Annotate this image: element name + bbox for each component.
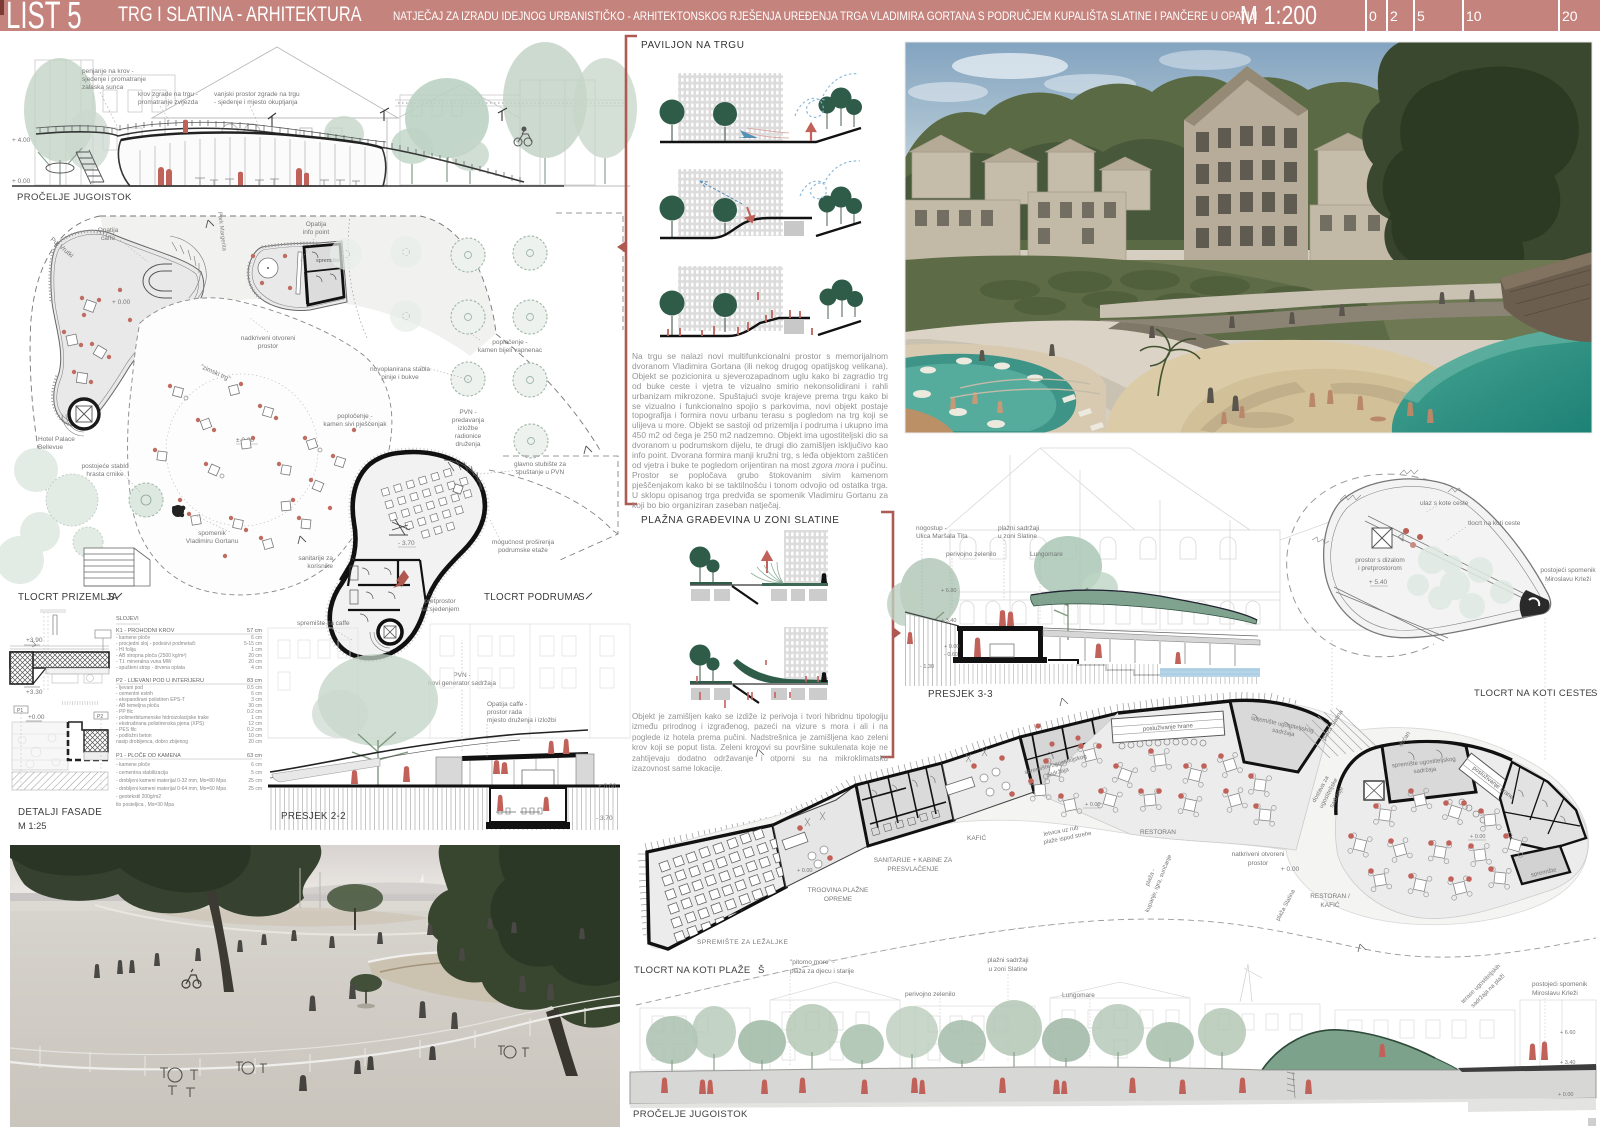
svg-text:6 cm: 6 cm: [251, 762, 262, 768]
svg-text:+0.00: +0.00: [28, 714, 45, 721]
svg-text:20 cm: 20 cm: [248, 739, 262, 745]
svg-text:perivojno zelenilo: perivojno zelenilo: [946, 551, 997, 558]
svg-text:P1: P1: [17, 708, 23, 714]
svg-text:PRESJEK 3-3: PRESJEK 3-3: [928, 689, 993, 700]
svg-text:Bellevue: Bellevue: [38, 444, 63, 451]
svg-text:popločenje -: popločenje -: [492, 339, 527, 346]
svg-text:prostor: prostor: [1248, 860, 1269, 867]
svg-text:druženja: druženja: [456, 441, 481, 448]
svg-text:KAFIĆ: KAFIĆ: [1320, 900, 1339, 909]
svg-text:plažni sadržaji: plažni sadržaji: [987, 957, 1028, 964]
svg-text:mjesto druženja i izložbi: mjesto druženja i izložbi: [487, 717, 556, 724]
svg-text:PRESVLAČENJE: PRESVLAČENJE: [887, 864, 939, 873]
svg-text:izložbe: izložbe: [458, 425, 479, 432]
svg-text:OPREME: OPREME: [824, 896, 853, 903]
svg-text:TLOCRT NA KOTI PLAŽE: TLOCRT NA KOTI PLAŽE: [634, 965, 751, 976]
svg-text:+ 0.00: + 0.00: [1281, 866, 1300, 873]
svg-text:plažni sadržaji: plažni sadržaji: [998, 525, 1039, 532]
svg-text:- geotekstil 200g/m2: - geotekstil 200g/m2: [116, 794, 161, 800]
svg-text:+ 0.00: + 0.00: [112, 299, 131, 306]
svg-text:prostor: prostor: [258, 343, 279, 350]
svg-text:nogostup -: nogostup -: [916, 525, 947, 532]
svg-text:Vladimiru Gortanu: Vladimiru Gortanu: [186, 538, 239, 545]
svg-text:+ 0.00: + 0.00: [598, 783, 617, 790]
svg-text:plaža Slatina: plaža Slatina: [1275, 888, 1297, 922]
svg-text:Opatija: Opatija: [98, 227, 119, 234]
svg-text:info point: info point: [303, 229, 330, 236]
svg-text:57 cm: 57 cm: [247, 628, 262, 634]
svg-text:Opatija caffe -: Opatija caffe -: [487, 701, 527, 708]
svg-text:+ 5.40: + 5.40: [1369, 579, 1388, 586]
svg-text:K1 - PROHODNI KROV: K1 - PROHODNI KROV: [116, 628, 175, 634]
svg-text:+ 0.00: + 0.00: [1085, 802, 1100, 808]
svg-text:postojeći spomenik: postojeći spomenik: [1540, 567, 1596, 574]
svg-text:radionice: radionice: [455, 433, 482, 440]
svg-text:TLOCRT PRIZEMLJA: TLOCRT PRIZEMLJA: [18, 592, 118, 603]
svg-text:natkriveni otvoreni: natkriveni otvoreni: [1232, 851, 1285, 858]
svg-text:glavno stubište za: glavno stubište za: [514, 461, 566, 468]
svg-text:TRGOVINA PLAŽNE: TRGOVINA PLAŽNE: [808, 885, 869, 894]
svg-text:+3.90: +3.90: [26, 637, 43, 644]
svg-text:prostor rada: prostor rada: [487, 709, 522, 716]
svg-text:5 cm: 5 cm: [251, 770, 262, 776]
svg-text:PROČELJE JUGOISTOK: PROČELJE JUGOISTOK: [17, 192, 132, 203]
svg-text:mogućnost proširenja: mogućnost proširenja: [492, 539, 555, 546]
svg-text:P1 - PLOČE OD KAMENA: P1 - PLOČE OD KAMENA: [116, 752, 181, 759]
svg-text:25 cm: 25 cm: [248, 778, 262, 784]
svg-text:+ 0.00: + 0.00: [944, 644, 959, 650]
svg-text:+ 0.00: + 0.00: [12, 178, 31, 185]
svg-text:+ 0.00: + 0.00: [1558, 1092, 1573, 1098]
svg-text:P2: P2: [97, 714, 103, 720]
svg-text:u zoni Slatine: u zoni Slatine: [998, 533, 1037, 540]
svg-text:podrumske etaže: podrumske etaže: [498, 547, 548, 554]
svg-text:promatranje zvijezda: promatranje zvijezda: [138, 99, 198, 106]
svg-text:pretprostor: pretprostor: [424, 598, 456, 605]
svg-text:Hotel Palace: Hotel Palace: [38, 436, 75, 443]
svg-text:+ 3.40: + 3.40: [941, 618, 956, 624]
svg-text:u zoni Slatine: u zoni Slatine: [988, 966, 1027, 973]
svg-text:S: S: [1591, 688, 1597, 699]
svg-text:- drobljeni kameni materijal 0: - drobljeni kameni materijal 0-32 mm, Ms…: [116, 778, 226, 784]
svg-text:Š: Š: [758, 965, 764, 976]
svg-text:plaža za djecu i starije: plaža za djecu i starije: [790, 968, 854, 975]
svg-text:+ 6.60: + 6.60: [1560, 1030, 1575, 1036]
svg-text:TLOCRT PODRUMA: TLOCRT PODRUMA: [484, 592, 580, 603]
svg-text:- 3.70: - 3.70: [596, 815, 613, 822]
svg-text:SPREMIŠTE ZA LEŽALJKE: SPREMIŠTE ZA LEŽALJKE: [697, 937, 789, 946]
svg-text:- spušteni strop - drvena opla: - spušteni strop - drvena oplata: [116, 665, 185, 671]
svg-text:+ 6.80: + 6.80: [941, 588, 956, 594]
svg-text:M 1:25: M 1:25: [18, 821, 46, 831]
svg-text:PVN -: PVN -: [453, 672, 470, 679]
svg-text:sjedenje i promatranje: sjedenje i promatranje: [82, 76, 146, 83]
svg-text:i pretprostorom: i pretprostorom: [1358, 565, 1402, 572]
svg-text:nasip drobljenca, dobro zbijen: nasip drobljenca, dobro zbijenog: [116, 739, 188, 745]
svg-text:hrasta crnike: hrasta crnike: [86, 471, 124, 478]
svg-text:tlo posteljica , Ms=30 Mpa: tlo posteljica , Ms=30 Mpa: [116, 802, 174, 808]
svg-text:predavanja: predavanja: [452, 417, 485, 424]
svg-text:spomenik: spomenik: [198, 530, 227, 537]
svg-text:- drobljeni kameni materijal 0: - drobljeni kameni materijal 0-64 mm, Ms…: [116, 786, 226, 792]
svg-text:+ 4.00: + 4.00: [12, 137, 31, 144]
svg-text:postojeće stablo: postojeće stablo: [82, 463, 129, 470]
svg-text:Opatija: Opatija: [306, 221, 327, 228]
svg-text:PRESJEK 2-2: PRESJEK 2-2: [281, 811, 346, 822]
svg-text:"pitomo more" -: "pitomo more" -: [790, 959, 835, 966]
svg-text:63 cm: 63 cm: [247, 753, 262, 759]
svg-text:korisnike: korisnike: [307, 563, 333, 570]
svg-text:zalaska sunca: zalaska sunca: [82, 84, 124, 91]
svg-text:tlocrt na koti ceste: tlocrt na koti ceste: [1468, 520, 1521, 527]
svg-text:PROČELJE JUGOISTOK: PROČELJE JUGOISTOK: [633, 1109, 748, 1120]
svg-text:nadkriveni otvoreni: nadkriveni otvoreni: [241, 335, 296, 342]
svg-text:- 0.60: - 0.60: [944, 652, 958, 658]
svg-text:- cementna stabilizacija: - cementna stabilizacija: [116, 770, 168, 776]
svg-text:popločenje -: popločenje -: [337, 413, 372, 420]
svg-text:PLAŽNA GRAĐEVINA U ZONI SLATIN: PLAŽNA GRAĐEVINA U ZONI SLATINE: [641, 513, 839, 526]
svg-text:ulaz s kote ceste: ulaz s kote ceste: [1420, 500, 1469, 507]
svg-text:- kamene ploče: - kamene ploče: [116, 762, 150, 768]
svg-text:RESTORAN /: RESTORAN /: [1310, 893, 1350, 900]
svg-text:prostor s dizalom: prostor s dizalom: [1355, 557, 1405, 564]
svg-text:DETALJI FASADE: DETALJI FASADE: [18, 807, 102, 818]
svg-text:PAVILJON NA TRGU: PAVILJON NA TRGU: [641, 40, 745, 51]
svg-text:S: S: [578, 592, 585, 603]
svg-text:RESTORAN: RESTORAN: [1140, 829, 1176, 836]
svg-text:25 cm: 25 cm: [248, 786, 262, 792]
svg-text:+ 0.00: + 0.00: [1470, 834, 1485, 840]
svg-text:- sjedenje i mjesto okupljanja: - sjedenje i mjesto okupljanja: [214, 99, 298, 106]
svg-text:spuštanje u PVN: spuštanje u PVN: [516, 469, 565, 476]
svg-text:novoplanirana stabla: novoplanirana stabla: [370, 366, 430, 373]
svg-text:Ulica Maršala Tita: Ulica Maršala Tita: [916, 533, 968, 540]
svg-text:spremište za caffe: spremište za caffe: [297, 620, 350, 627]
svg-text:kamen sivi pješčenjak: kamen sivi pješčenjak: [323, 421, 387, 428]
svg-text:perivojno zelenilo: perivojno zelenilo: [905, 991, 956, 998]
svg-text:vanjski prostor zgrade na trgu: vanjski prostor zgrade na trgu: [214, 91, 300, 98]
svg-text:penjanje na krov -: penjanje na krov -: [82, 68, 134, 75]
svg-text:Lungomare: Lungomare: [1030, 551, 1063, 558]
svg-text:KAFIĆ: KAFIĆ: [967, 833, 986, 842]
svg-text:PVN -: PVN -: [459, 409, 476, 416]
svg-text:P2 - LIJEVANI POD U INTERIJERU: P2 - LIJEVANI POD U INTERIJERU: [116, 678, 204, 684]
svg-text:novi generator sadržaja: novi generator sadržaja: [428, 680, 496, 687]
svg-text:krov zgrade na trgu -: krov zgrade na trgu -: [138, 91, 198, 98]
svg-text:- 1.30: - 1.30: [920, 664, 934, 670]
svg-text:SANITARIJE + KABINE ZA: SANITARIJE + KABINE ZA: [874, 857, 953, 864]
svg-text:caffe: caffe: [101, 235, 115, 242]
svg-text:S: S: [108, 592, 115, 603]
svg-text:+3.30: +3.30: [26, 689, 43, 696]
svg-text:kamen bijeli vapnenac: kamen bijeli vapnenac: [478, 347, 543, 354]
svg-text:Lungomare: Lungomare: [1062, 992, 1095, 999]
svg-text:Miroslavu Krleži: Miroslavu Krleži: [1545, 576, 1591, 583]
svg-text:+ 0.00: + 0.00: [797, 868, 812, 874]
svg-text:Miroslavu Krleži: Miroslavu Krleži: [1532, 990, 1578, 997]
svg-text:sa sjedenjem: sa sjedenjem: [421, 606, 459, 613]
svg-text:sanitarije za: sanitarije za: [298, 555, 333, 562]
svg-text:+ 3.40: + 3.40: [1560, 1060, 1575, 1066]
svg-text:TLOCRT NA KOTI CESTE: TLOCRT NA KOTI CESTE: [1474, 688, 1592, 699]
svg-text:postojeći spomenik: postojeći spomenik: [1532, 981, 1588, 988]
svg-text:pinije i bukve: pinije i bukve: [381, 374, 419, 381]
svg-text:- 3.70: - 3.70: [398, 540, 415, 547]
svg-text:SLOJEVI: SLOJEVI: [116, 616, 139, 622]
svg-text:83 cm: 83 cm: [247, 678, 262, 684]
svg-text:4 cm: 4 cm: [251, 665, 262, 671]
